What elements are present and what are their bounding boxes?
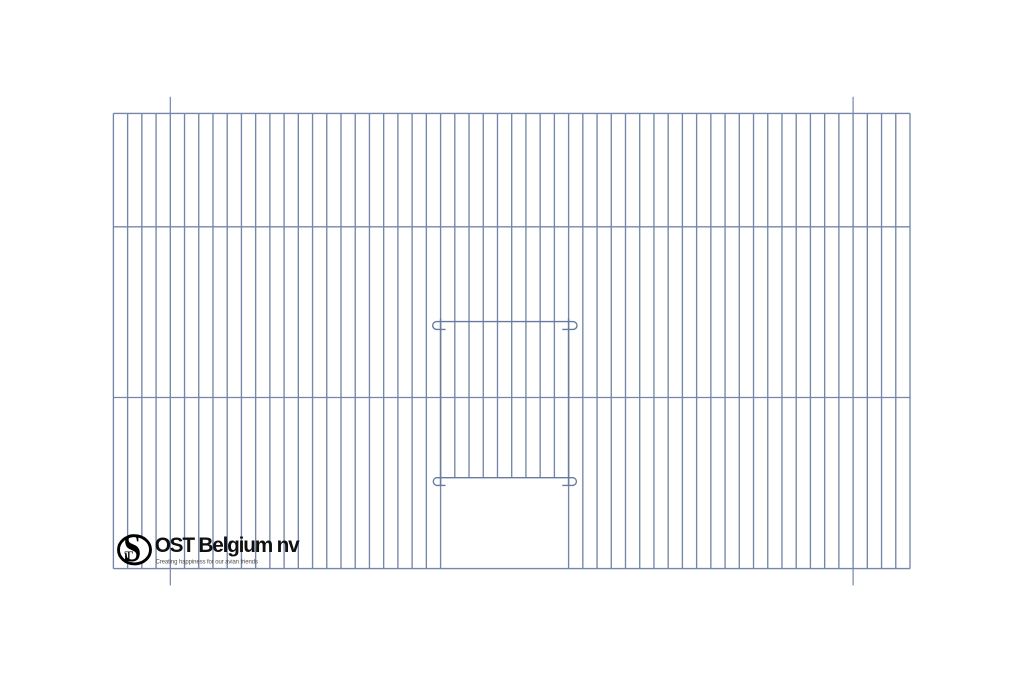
svg-text:OST Belgium nv: OST Belgium nv <box>155 534 300 557</box>
svg-text:Creating happiness for our avi: Creating happiness for our avian friends <box>156 559 258 565</box>
svg-text:S: S <box>123 526 141 570</box>
